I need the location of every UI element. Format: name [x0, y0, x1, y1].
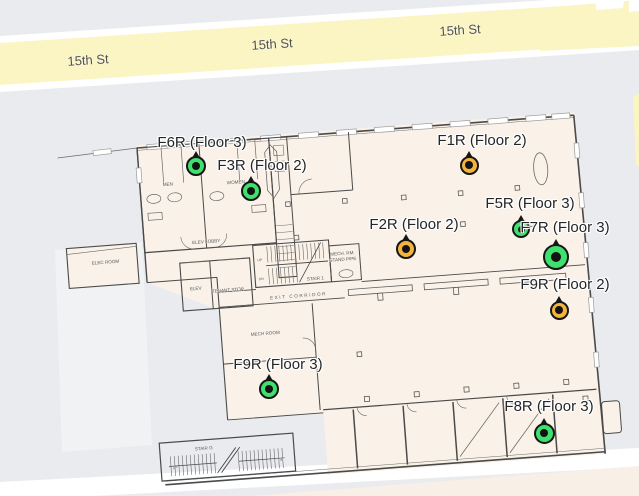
sensor-marker-f9r-2[interactable] [550, 301, 569, 320]
sensor-marker-label-f9r-2: F9R (Floor 2) [520, 276, 609, 293]
east-bump-out [601, 401, 621, 434]
marker-anchor-nub [540, 418, 548, 425]
sensor-marker-f2r[interactable] [396, 239, 416, 259]
sensor-marker-label-f2r: F2R (Floor 2) [369, 216, 458, 233]
sensor-marker-label-f9r-3: F9R (Floor 3) [233, 356, 322, 373]
elec-room [66, 243, 139, 288]
marker-anchor-nub [552, 239, 560, 246]
marker-core-dot [247, 187, 255, 195]
room-label-elev: ELEV [190, 285, 203, 291]
sensor-marker-f7r[interactable] [543, 244, 569, 270]
marker-anchor-nub [555, 296, 563, 303]
marker-anchor-nub [192, 151, 200, 158]
marker-core-dot [551, 252, 561, 262]
marker-core-dot [192, 162, 200, 170]
sensor-marker-label-f6r: F6R (Floor 3) [157, 134, 246, 151]
marker-anchor-nub [402, 234, 410, 241]
sensor-marker-label-f8r: F8R (Floor 3) [504, 398, 593, 415]
room-label-dn: DN [278, 458, 284, 462]
room-label-men: MEN [163, 181, 174, 187]
sensor-marker-label-f3r: F3R (Floor 2) [217, 157, 306, 174]
street-label-15th-st-3: 15th St [439, 21, 481, 39]
marker-anchor-nub [465, 151, 473, 158]
block-across-street-2 [629, 0, 639, 12]
marker-anchor-nub [247, 176, 255, 183]
sensor-marker-label-f5r: F5R (Floor 3) [485, 195, 574, 212]
sensor-marker-label-f7r: F7R (Floor 3) [520, 219, 609, 236]
marker-core-dot [555, 306, 563, 314]
marker-core-dot [465, 161, 473, 169]
sensor-marker-label-f1r: F1R (Floor 2) [437, 132, 526, 149]
marker-core-dot [402, 245, 410, 253]
sensor-marker-f8r[interactable] [534, 423, 555, 444]
street-label-15th-st-2: 15th St [251, 35, 293, 53]
street-label-15th-st-1: 15th St [67, 51, 109, 69]
sensor-marker-f3r[interactable] [241, 181, 261, 201]
map-canvas[interactable]: MENWOMENELEC ROOMELEV LOBBYELEVTENANT ST… [0, 0, 639, 496]
sensor-marker-f1r[interactable] [460, 156, 479, 175]
marker-anchor-nub [265, 374, 273, 381]
sensor-marker-f6r[interactable] [186, 156, 206, 176]
room-label-dn: DN [259, 277, 265, 281]
road-corner [540, 0, 639, 51]
marker-core-dot [540, 429, 548, 437]
sensor-marker-f9r-3[interactable] [259, 379, 279, 399]
marker-core-dot [265, 385, 273, 393]
